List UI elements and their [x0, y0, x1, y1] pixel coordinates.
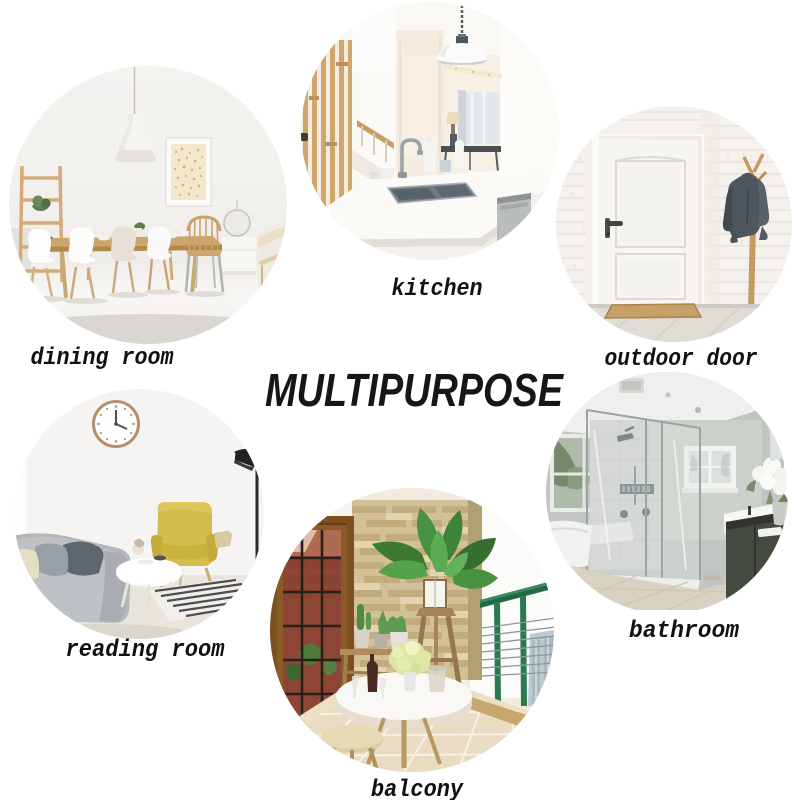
svg-text:dining room: dining room	[31, 345, 175, 372]
svg-text:kitchen: kitchen	[392, 276, 483, 303]
svg-text:MULTIPURPOSE: MULTIPURPOSE	[265, 364, 564, 416]
svg-text:bathroom: bathroom	[629, 618, 740, 645]
svg-text:outdoor door: outdoor door	[605, 346, 758, 373]
svg-text:balcony: balcony	[371, 777, 464, 800]
svg-text:reading room: reading room	[66, 637, 226, 664]
